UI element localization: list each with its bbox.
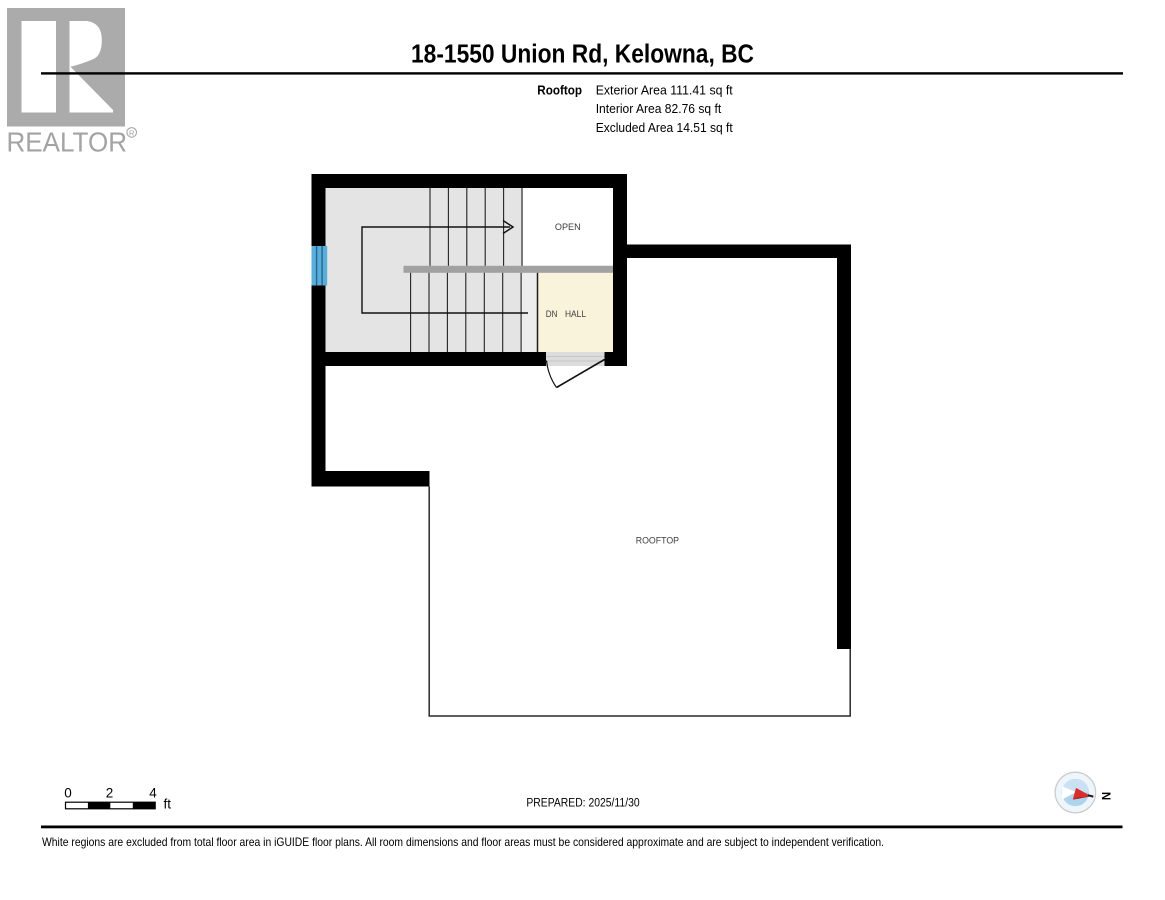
svg-text:PREPARED: 2025/11/30: PREPARED: 2025/11/30	[526, 796, 639, 810]
svg-text:White regions are excluded fro: White regions are excluded from total fl…	[42, 835, 884, 849]
svg-text:0: 0	[64, 786, 72, 801]
svg-text:Excluded Area 14.51 sq ft: Excluded Area 14.51 sq ft	[596, 120, 733, 135]
svg-text:R: R	[129, 128, 135, 137]
svg-text:Rooftop: Rooftop	[537, 82, 582, 97]
svg-text:DN: DN	[546, 309, 558, 320]
svg-text:18-1550 Union Rd, Kelowna, BC: 18-1550 Union Rd, Kelowna, BC	[411, 41, 754, 69]
svg-text:HALL: HALL	[565, 309, 586, 320]
svg-text:REALTOR: REALTOR	[7, 126, 128, 157]
svg-text:ROOFTOP: ROOFTOP	[636, 536, 679, 547]
svg-text:OPEN: OPEN	[555, 222, 581, 233]
svg-text:Exterior Area 111.41 sq ft: Exterior Area 111.41 sq ft	[596, 82, 733, 97]
svg-text:ft: ft	[164, 797, 172, 812]
svg-text:N: N	[1099, 792, 1111, 800]
svg-text:4: 4	[149, 786, 157, 801]
svg-text:Interior Area 82.76 sq ft: Interior Area 82.76 sq ft	[596, 101, 722, 116]
svg-text:2: 2	[106, 786, 114, 801]
